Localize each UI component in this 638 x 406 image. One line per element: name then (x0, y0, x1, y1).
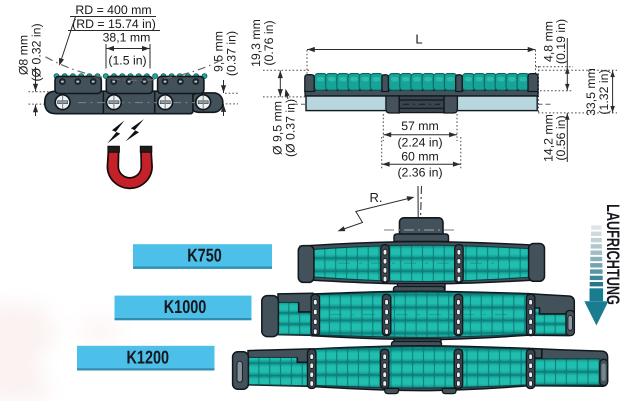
svg-text:Ø 9,5 mm: Ø 9,5 mm (271, 101, 285, 155)
svg-text:19,3 mm: 19,3 mm (249, 19, 263, 67)
svg-text:(0.56 in): (0.56 in) (554, 115, 568, 160)
svg-text:9,5 mm: 9,5 mm (212, 31, 226, 72)
svg-text:(1.5 in): (1.5 in) (108, 54, 146, 68)
svg-text:Ø8 mm: Ø8 mm (17, 35, 31, 75)
svg-text:(0.76 in): (0.76 in) (262, 20, 276, 65)
svg-text:K750: K750 (187, 245, 222, 266)
svg-text:57 mm: 57 mm (401, 119, 439, 133)
svg-text:38,1 mm: 38,1 mm (103, 31, 151, 45)
svg-text:K1000: K1000 (164, 296, 207, 317)
svg-text:R.: R. (370, 190, 383, 205)
svg-text:(2.36 in): (2.36 in) (397, 166, 442, 180)
svg-text:(2.24 in): (2.24 in) (397, 136, 442, 150)
svg-text:K1200: K1200 (126, 346, 169, 367)
svg-text:33,5 mm: 33,5 mm (584, 68, 598, 116)
svg-text:LAUFRICHTUNG: LAUFRICHTUNG (603, 204, 623, 305)
svg-text:(RD = 15.74 in): (RD = 15.74 in) (72, 17, 156, 31)
svg-text:RD = 400 mm: RD = 400 mm (75, 3, 151, 17)
svg-text:60 mm: 60 mm (401, 150, 439, 164)
svg-text:(Ø 0.37 in): (Ø 0.37 in) (284, 99, 298, 157)
svg-text:L: L (415, 32, 422, 47)
svg-text:(Ø 0.32 in): (Ø 0.32 in) (30, 23, 44, 81)
svg-text:(0.19 in): (0.19 in) (554, 19, 568, 64)
svg-text:(1.32 in): (1.32 in) (597, 69, 611, 114)
svg-text:(0.37 in): (0.37 in) (225, 31, 239, 76)
